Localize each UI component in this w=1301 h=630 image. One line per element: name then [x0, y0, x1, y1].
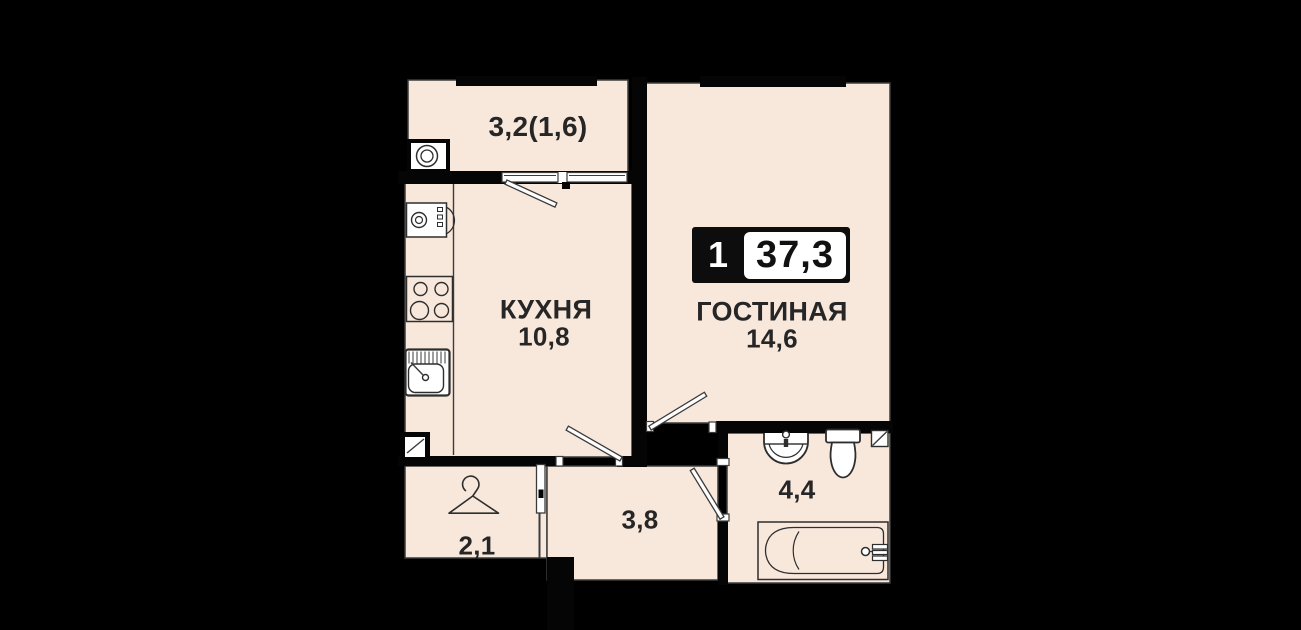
window-icon	[567, 173, 627, 183]
vent-shaft-icon	[403, 435, 428, 460]
floor-plan: 3,2(1,6) КУХНЯ 10,8 ГОСТИНАЯ 14,6 4,4 3,…	[0, 0, 1301, 630]
kitchen-area-label: 10,8	[518, 322, 570, 353]
door-handle	[539, 490, 544, 499]
wall-living-bathroom	[716, 421, 893, 433]
corner-shelf-icon	[872, 431, 889, 447]
washing-machine-icon	[409, 141, 448, 171]
living-area-label: 14,6	[746, 324, 798, 355]
room-bathroom	[727, 433, 890, 583]
entry-door-leaf-icon	[537, 465, 546, 514]
bathroom-area-label: 4,4	[778, 475, 815, 506]
floor-plan-drawing	[0, 0, 1301, 630]
window-icon	[502, 173, 558, 183]
wall-bathroom-left-upper	[718, 433, 728, 462]
badge-room-count: 1	[692, 234, 744, 276]
kitchen-sink-icon	[406, 350, 450, 396]
badge-total-area: 37,3	[756, 234, 834, 277]
entry-area-label: 2,1	[458, 531, 495, 562]
badge-area-box: 37,3	[744, 232, 846, 279]
wall-bathroom-left-lower	[718, 517, 728, 585]
wall-kitchen-living	[632, 77, 647, 467]
apartment-badge: 1 37,3	[692, 227, 850, 283]
hallway-area-label: 3,8	[621, 505, 658, 536]
balcony-area-label: 3,2(1,6)	[489, 111, 588, 143]
